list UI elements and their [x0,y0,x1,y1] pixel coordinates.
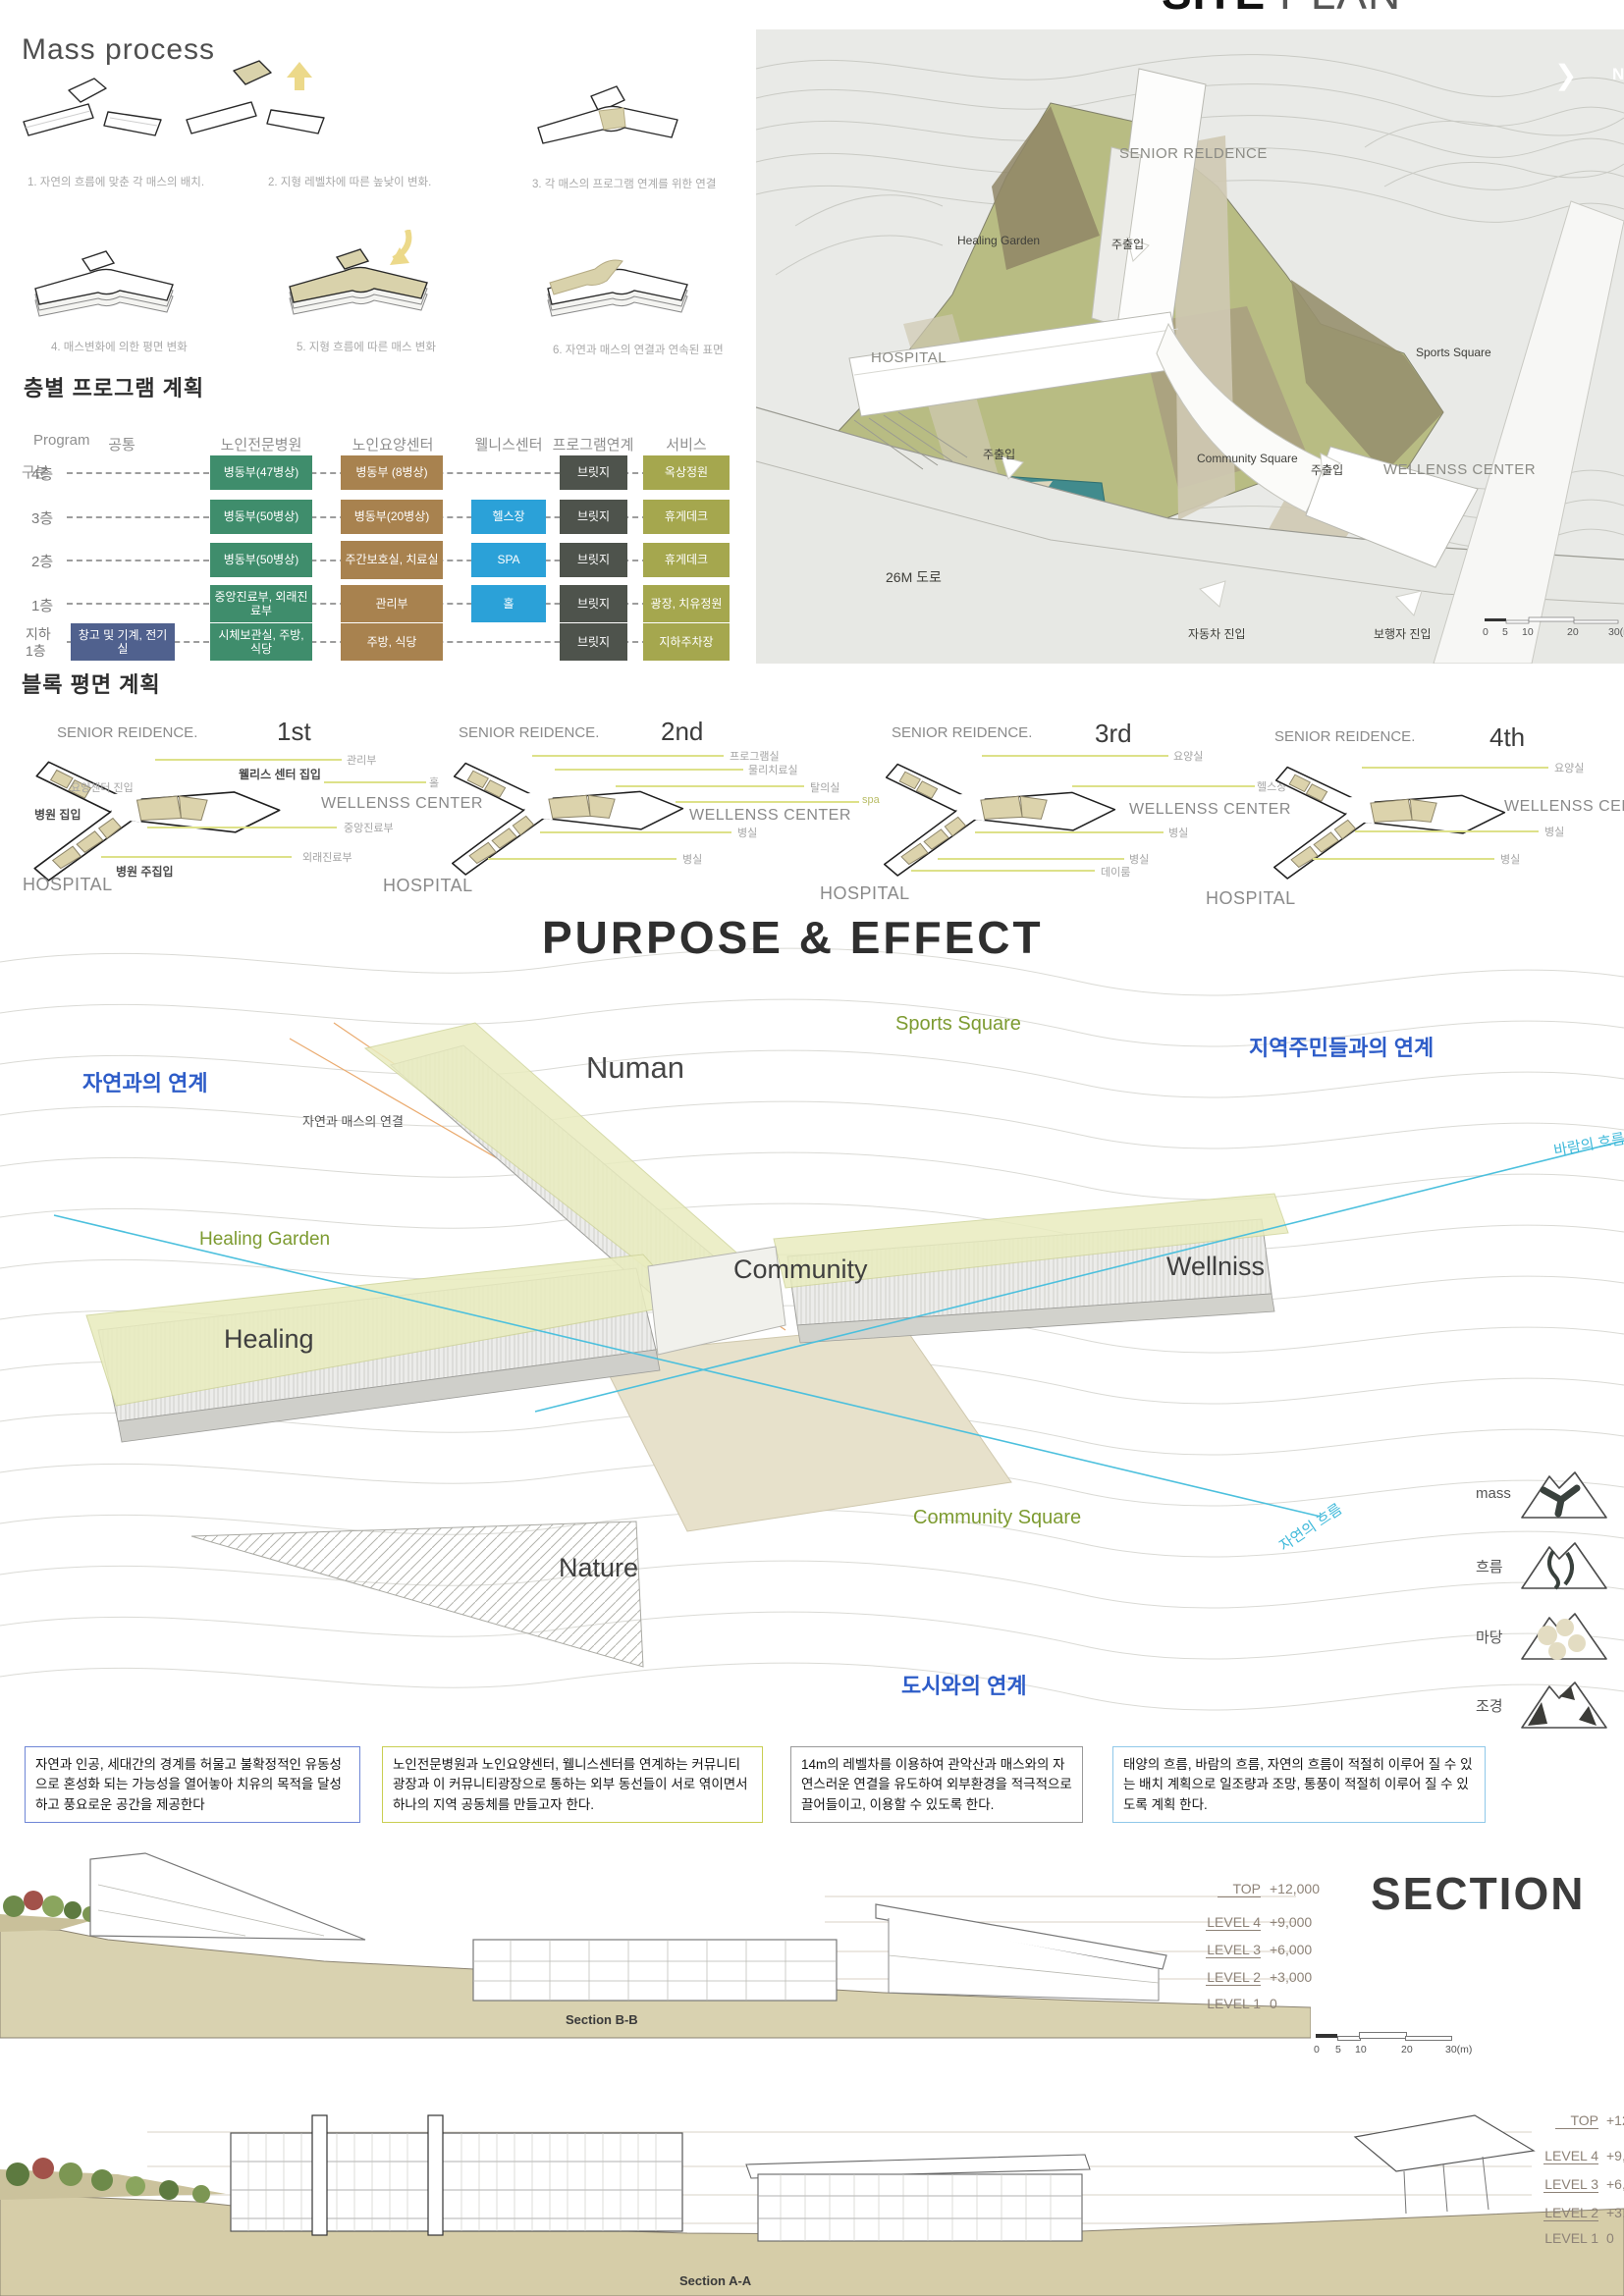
cell-2f-care: 주간보호실, 치료실 [341,541,443,579]
pe-label-sports-square: Sports Square [895,1013,1021,1036]
bb-level-val-top: +12,000 [1270,1881,1320,1896]
aa-level-name-2: LEVEL 2 [1543,2205,1598,2221]
row-label-1f: 1층 [31,595,53,615]
legend-label-flow: 흐름 [1476,1556,1503,1576]
cell-2f-bridge: 브릿지 [560,543,627,577]
row-label-b1: 지하 1층 [26,626,61,660]
bb-level-name-1: LEVEL 1 [1206,1996,1261,2011]
cell-b1-care: 주방, 식당 [341,623,443,661]
mass-diagram-6 [538,236,725,339]
plan1-callout: 요양센터 진입 [71,779,134,795]
plan2-hospital-label: HOSPITAL [383,876,473,896]
mass-caption-3: 3. 각 매스의 프로그램 연계를 위한 연결 [532,176,716,191]
pe-label-nature-link: 자연과의 연계 [82,1066,208,1097]
site-scale-20: 20 [1567,626,1579,638]
note-box-1: 자연과 인공, 세대간의 경계를 허물고 불확정적인 유동성으로 혼성화 되는 … [25,1746,360,1823]
plan2-callout: 병실 [682,851,702,867]
aa-level-name-4: LEVEL 4 [1543,2148,1598,2164]
col-wellness: 웰니스센터 [474,434,542,454]
plan1-callout: 관리부 [347,752,376,768]
mass-diagram-5 [280,230,461,340]
site-label-entry1: 주출입 [1111,236,1144,252]
note-box-4: 태양의 흐름, 바람의 흐름, 자연의 흐름이 적절히 이루어 질 수 있는 배… [1112,1746,1486,1823]
aa-level-val-4: +9, [1606,2148,1624,2163]
pe-label-city-link: 도시와의 연계 [901,1669,1027,1700]
bb-scale-0: 0 [1314,2044,1320,2056]
plan2-senior-label: SENIOR REIDENCE. [459,724,599,741]
bb-level-val-3: +6,000 [1270,1942,1312,1957]
bb-level-name-2: LEVEL 2 [1206,1969,1261,1986]
cell-1f-wellness: 홀 [471,585,546,622]
site-label-community-square: Community Square [1197,452,1298,465]
scale-bar-segment [1337,2036,1361,2041]
floor-plan-4: SENIOR REIDENCE. 4th 요양실 WELLENSS CENTER… [1200,715,1624,911]
mass-diagram-2 [177,55,344,168]
presentation-board: Mass process [0,0,1624,2296]
compass-arrow-icon: ❯ [1554,59,1577,91]
cell-4f-care: 병동부 (8병상) [341,455,443,490]
pe-label-numan: Numan [586,1050,684,1086]
note-text-2: 노인전문병원과 노인요양센터, 웰니스센터를 연계하는 커뮤니티 광장과 이 커… [393,1757,748,1812]
site-plan-title-plan: PLAN [1279,0,1401,19]
pe-label-community: Community [733,1255,868,1285]
plan3-callout: 병실 [1129,851,1149,867]
site-label-wellness: WELLENSS CENTER [1383,461,1536,478]
pe-label-community-square: Community Square [913,1507,1081,1529]
callout-line [1313,858,1494,860]
plan4-drawing [1269,754,1514,881]
bb-level-val-1: 0 [1270,1996,1277,2011]
aa-level-val-1: 0 [1606,2230,1614,2246]
legend-flow-icon [1518,1537,1610,1592]
plan4-wellness-label: WELLENSS CENTER [1504,798,1624,816]
callout-line [938,858,1124,860]
site-label-entry3: 주출입 [1311,461,1343,478]
plan1-senior-label: SENIOR REIDENCE. [57,724,197,741]
bb-scale-30: 30(m) [1445,2044,1472,2056]
purpose-title: PURPOSE & EFFECT [542,911,1044,964]
site-scale-10: 10 [1522,626,1534,638]
bb-scale-20: 20 [1401,2044,1413,2056]
bb-scale-10: 10 [1355,2044,1367,2056]
callout-line [982,755,1168,757]
legend-landscape-icon [1518,1677,1610,1732]
section-aa-label: Section A-A [679,2273,751,2288]
site-label-healing-garden: Healing Garden [957,234,1040,247]
col-hospital: 노인전문병원 [221,434,302,454]
cell-b1-common: 창고 및 기계, 전기실 [71,623,175,661]
mass-caption-6: 6. 자연과 매스의 연결과 연속된 표면 [553,342,724,357]
cell-1f-care: 관리부 [341,585,443,622]
aa-level-val-2: +3, [1606,2205,1624,2220]
cell-b1-bridge: 브릿지 [560,623,627,661]
section-bb-drawing [0,1845,1311,2056]
plan2-callout: 물리치료실 [748,762,798,777]
section-title: SECTION [1371,1867,1585,1920]
cell-2f-hospital: 병동부(50병상) [210,543,312,577]
note-text-4: 태양의 흐름, 바람의 흐름, 자연의 흐름이 적절히 이루어 질 수 있는 배… [1123,1757,1473,1812]
row-label-3f: 3층 [31,507,53,528]
bb-level-name-top: TOP [1218,1881,1261,1897]
mass-diagram-1 [18,67,175,170]
compass-n: N [1612,65,1624,84]
mass-diagram-4 [27,241,204,340]
plan1-hospital-label: HOSPITAL [23,875,113,895]
plan4-senior-label: SENIOR REIDENCE. [1274,728,1415,745]
site-label-road: 26M 도로 [886,567,942,587]
mass-diagram-3 [530,71,712,174]
plan1-floor-label: 1st [277,717,311,747]
callout-line [155,759,342,761]
mass-caption-4: 4. 매스변화에 의한 평면 변화 [51,339,188,354]
plan3-callout: 데이룸 [1101,864,1130,880]
cell-4f-hospital: 병동부(47병상) [210,455,312,490]
note-box-3: 14m의 레벨차를 이용하여 관악산과 매스와의 자연스러운 연결을 유도하여 … [790,1746,1083,1823]
bb-scale-5: 5 [1335,2044,1341,2056]
plan1-callout: 웰리스 센터 집입 [239,766,321,782]
note-text-1: 자연과 인공, 세대간의 경계를 허물고 불확정적인 유동성으로 혼성화 되는 … [35,1757,342,1812]
cell-1f-hospital: 중앙진료부, 외래진료부 [210,585,312,622]
cell-1f-service: 광장, 치유정원 [643,585,730,622]
scale-bar-segment [1405,2036,1452,2041]
bb-level-name-3: LEVEL 3 [1206,1942,1261,1958]
plan3-callout: 요양실 [1173,748,1203,764]
legend-yard-icon [1518,1608,1610,1663]
bb-level-val-2: +3,000 [1270,1969,1312,1985]
cell-3f-bridge: 브릿지 [560,500,627,534]
col-service: 서비스 [666,434,706,454]
site-plan-title: SITE PLAN [1162,0,1401,20]
callout-line [488,858,677,860]
site-label-senior: SENIOR RELDENCE [1119,145,1268,162]
cell-2f-service: 휴게데크 [643,543,730,577]
site-label-entry2: 주출입 [983,446,1015,462]
plan1-callout: 외래진료부 [302,849,352,865]
section-aa-drawing [0,2076,1624,2296]
mass-caption-1: 1. 자연의 흐름에 맞춘 각 매스의 배치. [27,174,204,189]
row-label-4f: 4층 [31,463,53,484]
cell-3f-wellness: 헬스장 [471,500,546,534]
scale-bar-segment [1316,2034,1337,2038]
pe-label-residents-link: 지역주민들과의 연계 [1249,1031,1434,1062]
bb-level-name-4: LEVEL 4 [1206,1914,1261,1931]
callout-line [1362,767,1548,769]
floor-plan-2: SENIOR REIDENCE. 2nd 프로그램실 물리치료실 탈의실 spa… [378,715,874,906]
site-label-car-entry: 자동차 진입 [1188,625,1246,642]
callout-line [147,827,337,828]
callout-line [540,831,731,833]
col-care: 노인요양센터 [352,434,434,454]
callout-line [532,755,724,757]
program-plan-heading: 층별 프로그램 계획 [24,371,204,402]
cell-2f-wellness: SPA [471,543,546,577]
legend-label-mass: mass [1476,1485,1511,1502]
table-corner-program: Program [33,432,90,449]
note-text-3: 14m의 레벨차를 이용하여 관악산과 매스와의 자연스러운 연결을 유도하여 … [801,1757,1072,1812]
cell-3f-service: 휴게데크 [643,500,730,534]
callout-line [616,785,804,787]
plan4-callout: 요양실 [1554,760,1584,775]
site-label-ped-entry: 보행자 진입 [1374,625,1432,642]
plan1-callout: 병원 주집입 [116,863,174,880]
row-label-2f: 2층 [31,551,53,571]
plan4-floor-label: 4th [1489,722,1525,753]
plan4-callout: 병실 [1500,851,1520,867]
cell-4f-bridge: 브릿지 [560,455,627,490]
cell-4f-service: 옥상정원 [643,455,730,490]
scale-bar-segment [1359,2032,1407,2039]
pe-label-nature: Nature [559,1553,638,1583]
plan3-floor-label: 3rd [1095,719,1132,749]
legend-label-landscape: 조경 [1476,1695,1503,1716]
callout-line [1355,830,1539,832]
plan2-floor-label: 2nd [661,717,703,747]
aa-level-name-top: TOP [1555,2112,1598,2129]
cell-b1-hospital: 시체보관실, 주방, 식당 [210,623,312,661]
cell-3f-hospital: 병동부(50병상) [210,500,312,534]
callout-line [975,831,1164,833]
site-label-sports-square: Sports Square [1416,346,1491,359]
mass-caption-2: 2. 지형 레벨차에 따른 높낮이 변화. [268,174,431,189]
plan4-callout: 병실 [1544,824,1564,839]
site-scale-0: 0 [1483,626,1489,638]
pe-label-nature-mass: 자연과 매스의 연결 [302,1111,404,1130]
legend-mass-icon [1518,1467,1610,1522]
site-label-hospital: HOSPITAL [871,349,947,366]
pe-label-healing-garden: Healing Garden [199,1229,330,1251]
callout-line [911,870,1095,872]
plan1-callout: 병원 집입 [34,806,81,823]
site-scale-5: 5 [1502,626,1508,638]
note-box-2: 노인전문병원과 노인요양센터, 웰니스센터를 연계하는 커뮤니티 광장과 이 커… [382,1746,763,1823]
legend-label-yard: 마당 [1476,1627,1503,1647]
plan2-callout: 병실 [737,825,757,840]
aa-level-name-1: LEVEL 1 [1543,2230,1598,2246]
plan3-senior-label: SENIOR REIDENCE. [892,724,1032,741]
pe-label-healing: Healing [224,1324,314,1355]
plan3-callout: 병실 [1168,825,1188,840]
aa-level-name-3: LEVEL 3 [1543,2176,1598,2193]
col-common: 공통 [108,434,135,454]
plan3-hospital-label: HOSPITAL [820,883,910,904]
section-bb-label: Section B-B [566,2012,638,2027]
site-scale-30: 30(m) [1608,626,1624,638]
col-program-link: 프로그램연계 [553,434,634,454]
mass-caption-5: 5. 지형 흐름에 따른 매스 변화 [297,339,436,354]
aa-level-val-top: +12 [1606,2112,1624,2128]
site-plan-title-site: SITE [1162,0,1266,19]
cell-3f-care: 병동부(20병상) [341,500,443,534]
pe-label-wellniss: Wellniss [1166,1252,1265,1282]
callout-line [101,856,292,858]
cell-b1-service: 지하주차장 [643,623,730,661]
cell-1f-bridge: 브릿지 [560,585,627,622]
plan4-hospital-label: HOSPITAL [1206,888,1296,909]
aa-level-val-3: +6, [1606,2176,1624,2192]
block-plan-heading: 블록 평면 계획 [22,667,161,699]
bb-level-val-4: +9,000 [1270,1914,1312,1930]
callout-line [555,769,743,771]
